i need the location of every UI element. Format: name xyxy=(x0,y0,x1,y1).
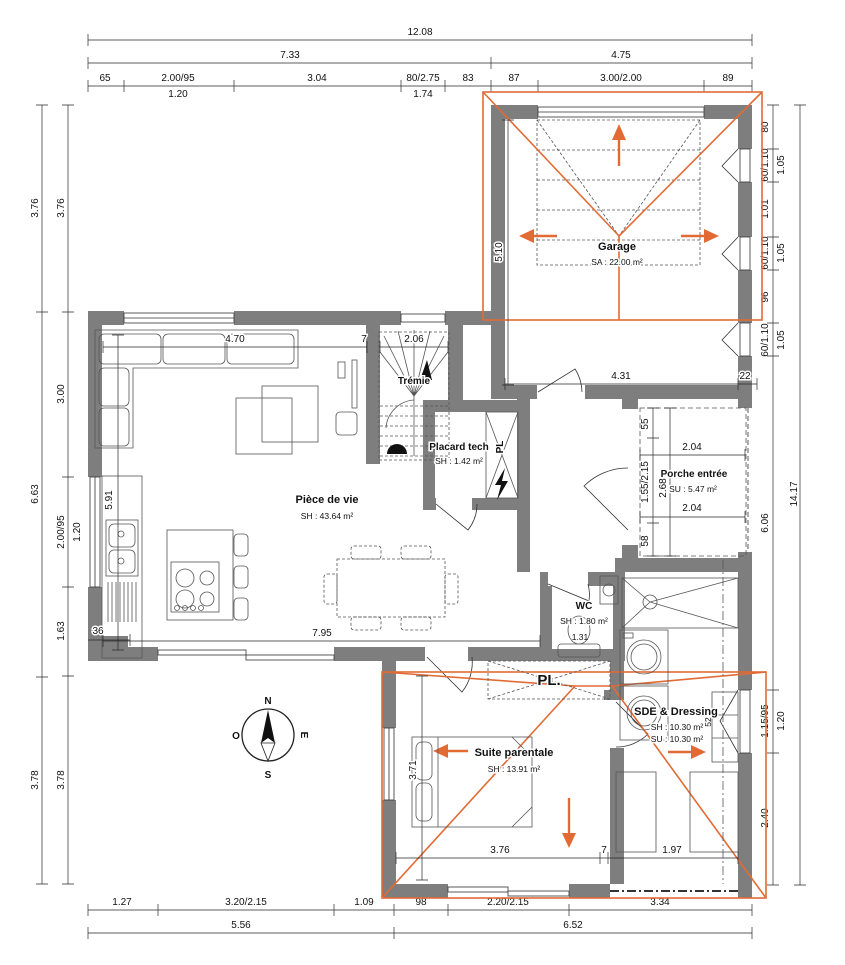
dim-label: 3.78 xyxy=(30,770,41,790)
closet-label-pl: PL. xyxy=(537,672,560,689)
staircase: Trémie xyxy=(379,330,449,460)
door-entry xyxy=(584,468,628,530)
dim-sub-label: 1.20 xyxy=(776,711,787,731)
sliding-bay-living-2 xyxy=(246,655,334,660)
coffee-table xyxy=(236,386,318,454)
dim-label: 2.00/95 xyxy=(56,515,67,549)
dining-set xyxy=(324,546,458,630)
sliding-bay-living xyxy=(158,650,246,655)
dim-label: 1.55/2.15 xyxy=(640,461,651,503)
dim-label: 2.04 xyxy=(682,442,702,453)
dim-label: 3.04 xyxy=(307,73,327,84)
stool xyxy=(234,598,248,620)
room-area-suite: SH : 13.91 m² xyxy=(488,764,541,774)
dim-label: 80/2.75 xyxy=(406,73,440,84)
dim-label: 1.27 xyxy=(112,897,132,908)
door-wc xyxy=(548,584,589,601)
opening-top xyxy=(401,314,445,322)
dim-label: 14.17 xyxy=(789,481,800,506)
room-label-living: Pièce de vie xyxy=(296,494,359,506)
dim-label: 55 xyxy=(640,418,651,430)
dim-label: 1.09 xyxy=(354,897,374,908)
dim-label: 2.04 xyxy=(682,503,702,514)
dim-label: 2.00/95 xyxy=(161,73,195,84)
windows xyxy=(90,107,750,896)
electrical-panel-icon xyxy=(495,468,508,500)
dim-top-right: 4.75 xyxy=(611,50,631,61)
dim-label: 7.95 xyxy=(312,628,332,639)
room-area-garage: SA : 22.00 m² xyxy=(591,257,643,267)
stairs-start-marker xyxy=(387,444,407,454)
porch: 55 1.55/2.15 58 2.68 2.04 2.04 Porche en… xyxy=(640,408,746,556)
room-label-tech: Placard tech xyxy=(429,442,488,453)
room-label-garage: Garage xyxy=(598,241,636,253)
dim-sub-label: 1.20 xyxy=(168,89,188,100)
floorplan-svg: 12.08 7.33 4.75 65 2.00/95 3.04 80/2.75 … xyxy=(0,0,845,960)
room-label-wc: WC xyxy=(576,601,593,612)
door-suite xyxy=(427,657,472,692)
exterior-walls xyxy=(88,105,752,898)
dim-label: 83 xyxy=(462,73,474,84)
dim-label: 52 xyxy=(703,717,713,727)
dim-label: 5.91 xyxy=(104,490,115,510)
dim-label: 3.76 xyxy=(30,198,41,218)
dimension-chain-left: 3.76 6.63 3.78 3.76 3.00 2.00/95 1.63 3.… xyxy=(30,105,83,884)
dim-label: 65 xyxy=(99,73,111,84)
floorplan-canvas: 12.08 7.33 4.75 65 2.00/95 3.04 80/2.75 … xyxy=(0,0,845,960)
stool xyxy=(234,534,248,556)
dim-top-total: 12.08 xyxy=(407,27,432,38)
dim-label: 3.78 xyxy=(56,770,67,790)
room-area-porch: SU : 5.47 m² xyxy=(669,484,717,494)
window-garage-3 xyxy=(740,323,750,356)
dimension-chain-top: 12.08 7.33 4.75 65 2.00/95 3.04 80/2.75 … xyxy=(88,27,752,100)
sofa xyxy=(95,330,298,448)
window-garage-2 xyxy=(740,237,750,270)
dim-label: 4.70 xyxy=(225,334,245,345)
tv-unit xyxy=(336,360,357,435)
compass-needle-south xyxy=(261,743,275,761)
dim-label: 58 xyxy=(640,535,651,547)
dim-label: 7 xyxy=(601,845,607,856)
dim-sub-label: 1.05 xyxy=(776,330,787,350)
dim-label: 5.56 xyxy=(231,920,251,931)
room-area-sde-sh: SH : 10.30 m² xyxy=(651,722,704,732)
sliding-bay-suite xyxy=(448,887,508,892)
dim-label: 6.52 xyxy=(563,920,583,931)
dim-sub-label: 1.05 xyxy=(776,155,787,175)
dimension-chain-bottom: 1.27 3.20/2.15 1.09 98 2.20/2.15 3.34 5.… xyxy=(88,897,752,939)
dim-sub-label: 1.74 xyxy=(413,89,433,100)
garage-roof xyxy=(483,92,762,320)
room-label-tremie: Trémie xyxy=(398,376,431,387)
room-area-tech: SH : 1.42 m² xyxy=(435,456,483,466)
dim-label: 3.76 xyxy=(56,198,67,218)
dim-label: 3.76 xyxy=(490,845,510,856)
dim-top-left: 7.33 xyxy=(280,50,300,61)
dim-label: 3.00/2.00 xyxy=(600,73,642,84)
compass-o: O xyxy=(232,731,240,742)
shower xyxy=(622,578,738,628)
door-placard xyxy=(436,504,477,530)
dim-label: 3.71 xyxy=(408,760,419,780)
dim-sub-label: 1.05 xyxy=(776,243,787,263)
dim-label: 1.31 xyxy=(572,632,589,642)
room-area-sde-su: SU : 10.30 m² xyxy=(651,734,704,744)
dim-label: 6.63 xyxy=(30,484,41,504)
dim-label: 3.20/2.15 xyxy=(225,897,267,908)
compass-rose: N S O E xyxy=(232,696,309,781)
dim-label: 36 xyxy=(92,626,104,637)
closet-label-pl-tech: PL xyxy=(495,441,506,454)
room-area-living: SH : 43.64 m² xyxy=(301,511,354,521)
interior-dimensions: 4.70 7 2.06 5.10 4.31 22 5.91 7.95 36 3.… xyxy=(88,120,757,880)
window-sde xyxy=(740,690,750,753)
dim-label: 3.00 xyxy=(56,384,67,404)
dim-label: 4.31 xyxy=(611,371,631,382)
dim-label: 6.06 xyxy=(760,513,771,533)
window-garage-1 xyxy=(740,149,750,182)
compass-s: S xyxy=(265,770,272,781)
compass-e: E xyxy=(298,732,309,739)
dim-label: 1.97 xyxy=(662,845,682,856)
room-label-porch: Porche entrée xyxy=(661,469,728,480)
dim-label: 2.68 xyxy=(658,478,669,498)
suite-roof xyxy=(382,560,766,898)
compass-needle-north xyxy=(261,710,275,743)
compass-n: N xyxy=(264,696,271,707)
dim-label: 2.06 xyxy=(404,334,424,345)
dim-label: 87 xyxy=(508,73,520,84)
dim-label: 60/1.10 xyxy=(760,323,771,357)
door-garage xyxy=(538,369,582,392)
dim-label: 1.63 xyxy=(56,621,67,641)
room-label-sde: SDE & Dressing xyxy=(634,706,718,718)
room-area-wc: SH : 1.80 m² xyxy=(560,616,608,626)
dim-label: 5.10 xyxy=(494,242,505,262)
dimension-chain-right: 80 60/1.10 1.01 60/1.10 96 60/1.10 6.06 … xyxy=(760,105,806,885)
room-label-suite: Suite parentale xyxy=(475,747,554,759)
dim-label: 89 xyxy=(722,73,734,84)
stool xyxy=(234,566,248,588)
kitchen xyxy=(102,476,248,658)
dim-sub-label: 1.20 xyxy=(72,522,83,542)
dim-label: 7 xyxy=(361,334,367,345)
sliding-bay-suite-2 xyxy=(508,891,569,896)
dim-label: 22 xyxy=(739,371,751,382)
